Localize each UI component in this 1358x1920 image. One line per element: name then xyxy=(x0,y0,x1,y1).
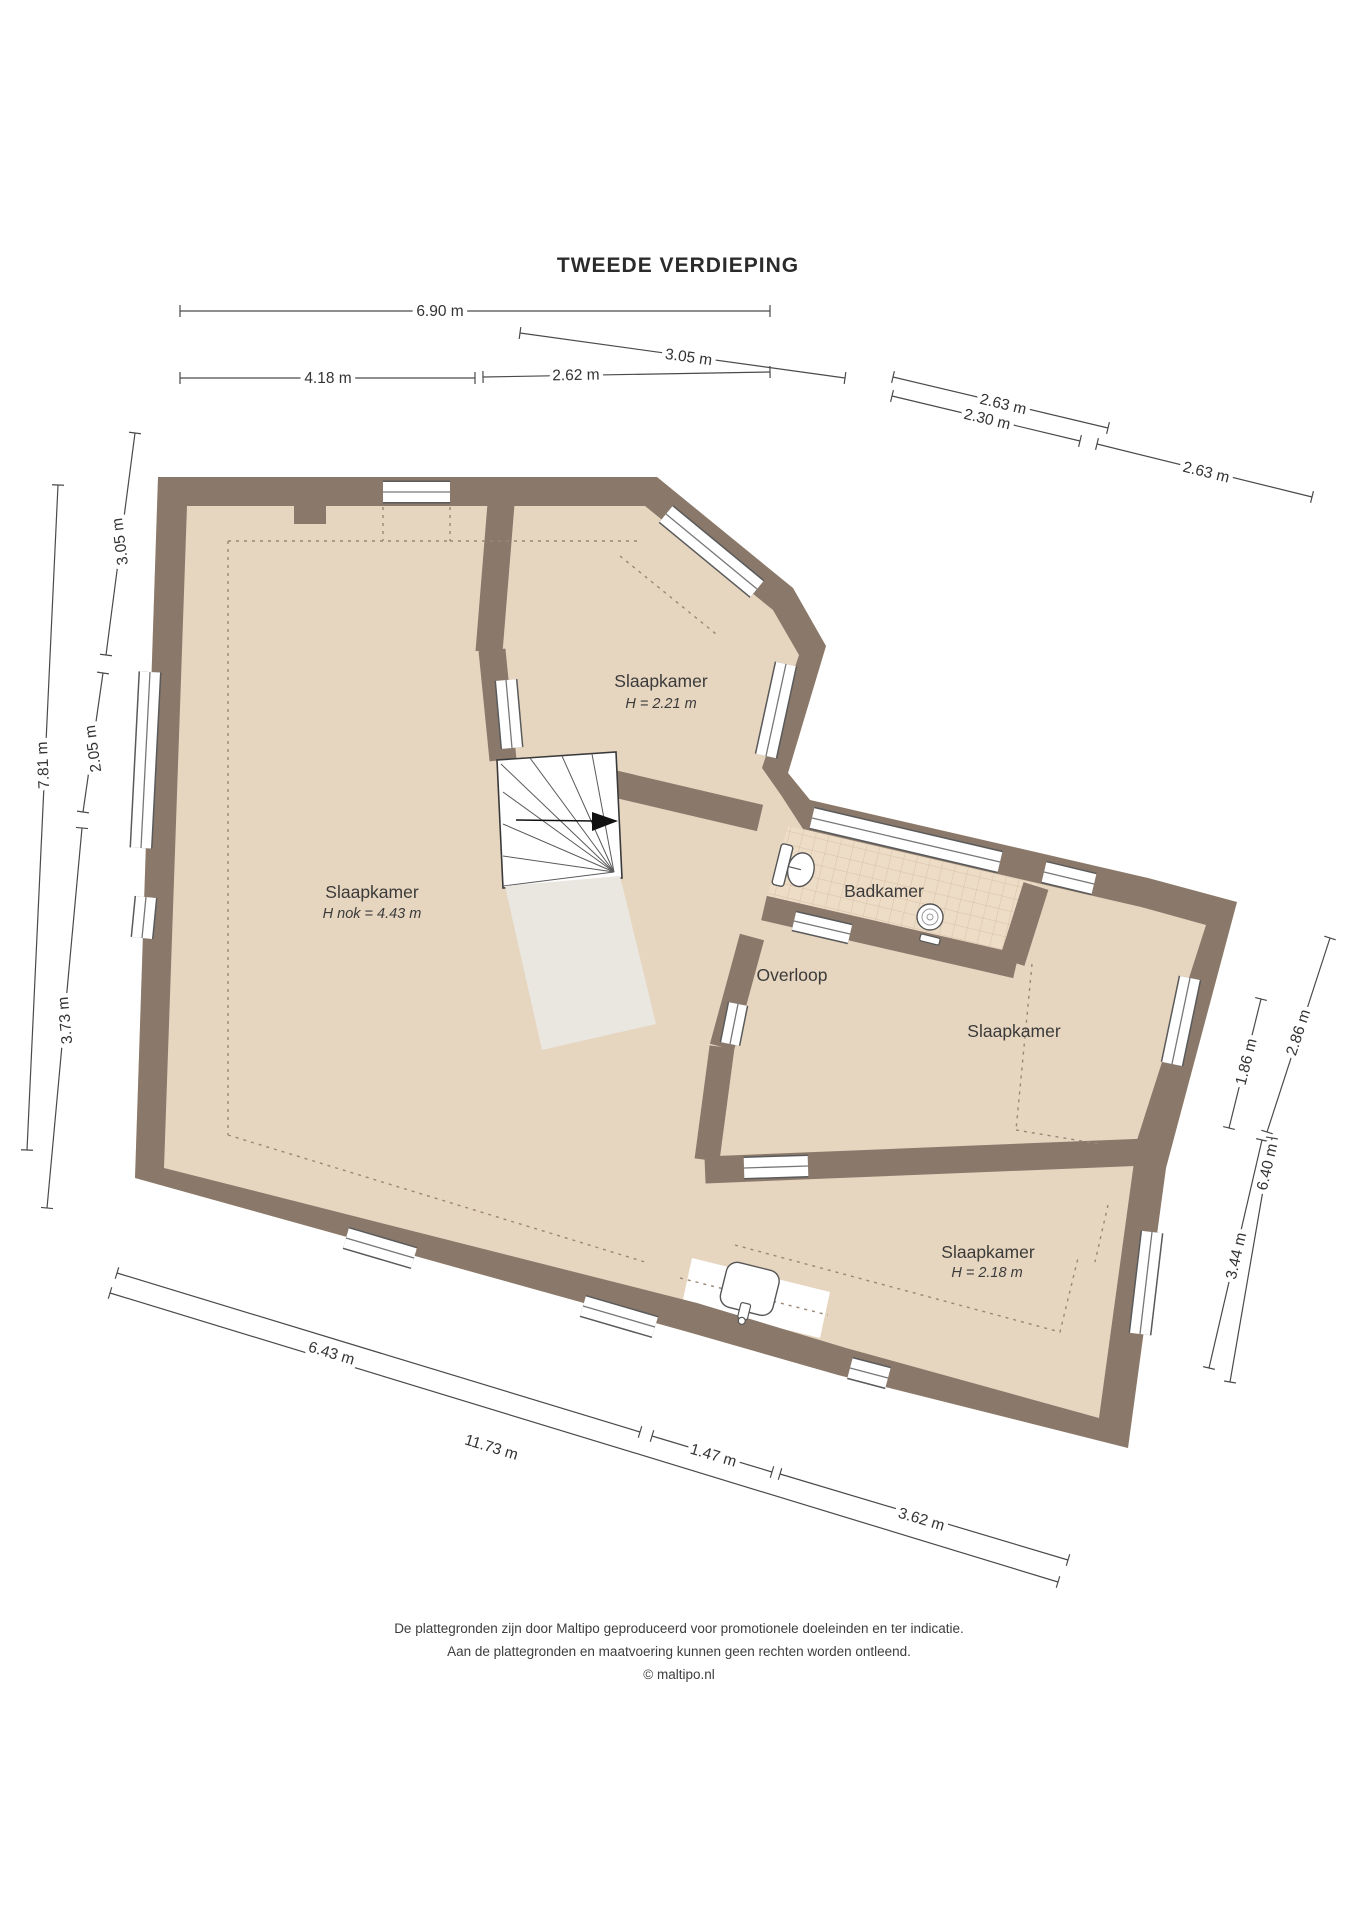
stairs-direction-line xyxy=(516,820,594,821)
footer-disclaimer: De plattegronden zijn door Maltipo gepro… xyxy=(394,1621,964,1682)
bottom-bedroom-height: H = 2.18 m xyxy=(951,1265,1022,1281)
landing-label: Overloop xyxy=(756,965,827,985)
dim-tick xyxy=(41,1207,53,1208)
footer-line-1: De plattegronden zijn door Maltipo gepro… xyxy=(394,1621,964,1636)
bathroom-label: Badkamer xyxy=(844,881,924,901)
dim-tick xyxy=(21,1150,33,1151)
dim-label: 2.63 m xyxy=(1181,459,1231,487)
dim-tick xyxy=(519,327,521,339)
top-bedroom-height: H = 2.21 m xyxy=(625,696,696,712)
footer-line-2: Aan de plattegronden en maatvoering kunn… xyxy=(447,1644,911,1659)
floorplan-canvas: TWEEDE VERDIEPING xyxy=(0,0,1358,1920)
dim-label: 3.05 m xyxy=(109,517,132,566)
dim-tick xyxy=(129,432,141,434)
chimney-block xyxy=(294,500,326,524)
right-bedroom-label: Slaapkamer xyxy=(967,1021,1061,1041)
shower-icon xyxy=(917,904,943,945)
dim-label: 3.62 m xyxy=(896,1505,946,1535)
dim-label: 4.18 m xyxy=(304,370,351,387)
dim-label: 1.47 m xyxy=(688,1441,738,1471)
dim-label: 1.86 m xyxy=(1233,1037,1261,1087)
dim-tick xyxy=(100,654,112,656)
dim-label: 6.40 m xyxy=(1254,1142,1281,1192)
bottom-bedroom-label: Slaapkamer xyxy=(941,1242,1035,1262)
dim-tick xyxy=(844,372,846,384)
dim-label: 6.90 m xyxy=(416,303,463,320)
top-bedroom-label: Slaapkamer xyxy=(614,671,708,691)
dim-tick xyxy=(52,485,64,486)
dim-label: 2.05 m xyxy=(82,724,105,773)
dim-label: 3.05 m xyxy=(664,346,713,369)
footer-line-3: © maltipo.nl xyxy=(643,1667,714,1682)
dim-label: 7.81 m xyxy=(34,741,53,789)
dim-tick xyxy=(77,811,89,813)
dim-label: 11.73 m xyxy=(463,1432,520,1464)
page-title: TWEEDE VERDIEPING xyxy=(557,254,799,277)
dim-label: 3.73 m xyxy=(55,996,76,1045)
dim-tick xyxy=(97,672,109,674)
dim-label: 2.86 m xyxy=(1283,1007,1314,1057)
dim-label: 3.44 m xyxy=(1223,1231,1250,1281)
dim-tick xyxy=(76,827,88,828)
main-bedroom-height: H nok = 4.43 m xyxy=(323,906,422,922)
dim-label: 2.62 m xyxy=(552,367,600,385)
main-bedroom-label: Slaapkamer xyxy=(325,882,419,902)
floorplan-page: TWEEDE VERDIEPING xyxy=(0,0,1358,1920)
